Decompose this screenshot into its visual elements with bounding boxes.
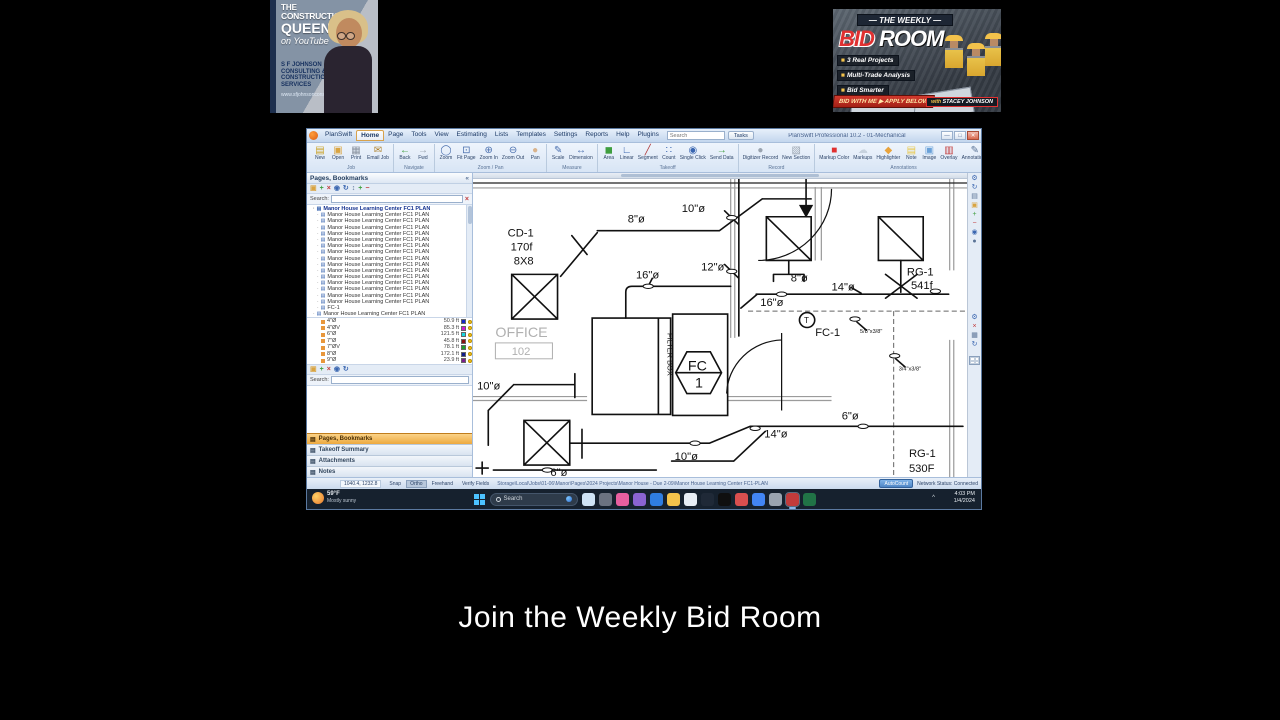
plan-label: 8"ø: [628, 214, 645, 226]
plan-labels: 10"ø8"øCD-1170f8X812"ø16"ø8"ø14"ø16"øRG-…: [477, 203, 936, 477]
cursor-coordinates: 1040.4, 1232.8: [340, 480, 381, 488]
weather-icon: [312, 492, 324, 504]
menu-tabs: PlanSwiftHomePageToolsViewEstimatingList…: [321, 130, 663, 141]
record-icon[interactable]: ◉: [334, 184, 340, 193]
plan-label: 10"ø: [477, 381, 500, 393]
takeoff-items-list: 4"Ø50.9 ft4"ØV85.3 ft6"Ø121.5 ft7"Ø45.8 …: [307, 318, 472, 365]
sort-icon[interactable]: ↕: [352, 184, 356, 193]
linear-takeoff-icon: [321, 359, 325, 363]
record-icon[interactable]: ◉: [334, 365, 340, 374]
taskbar-icons: [582, 493, 816, 506]
glasses-icon: [337, 27, 361, 35]
ribbon-button-open[interactable]: ▣Open: [329, 144, 347, 163]
ribbon-button-label: Area: [604, 156, 615, 162]
ribbon-button-highlighter[interactable]: ◆Highlighter: [874, 144, 902, 163]
takeoff-color-chip[interactable]: [461, 358, 466, 363]
plan-label: 3/4"x3/8": [899, 367, 921, 373]
ribbon-button-segment[interactable]: ╱Segment: [636, 144, 660, 163]
ribbon-button-label: New Section: [782, 156, 810, 162]
tree-scrollbar[interactable]: [466, 205, 472, 317]
plan-label: RG-1: [909, 448, 936, 460]
visibility-bulb-icon[interactable]: [468, 333, 472, 337]
ribbon-group-zoom-pan: ◯Zoom⊡Fit Page⊕Zoom In⊖Zoom Out●PanZoom …: [435, 144, 547, 172]
planswift-window: PlanSwiftHomePageToolsViewEstimatingList…: [306, 128, 982, 510]
page-icon: ▤: [317, 311, 322, 317]
sidebar-toolbar: ▣+×◉↻↕+−: [307, 184, 472, 194]
banner-bullet: ■3 Real Projects: [837, 55, 899, 66]
ribbon-button-label: Email Job: [367, 156, 389, 162]
plan-label: 14"ø: [832, 281, 855, 293]
store-icon[interactable]: [633, 493, 646, 506]
explorer-icon[interactable]: [667, 493, 680, 506]
record-icon[interactable]: ◉: [971, 229, 977, 237]
app-status-bar: 1040.4, 1232.8 SnapOrthoFreehandVerify F…: [307, 477, 981, 489]
ribbon-button-label: Fit Page: [457, 156, 476, 162]
bing-icon: [566, 496, 572, 502]
ribbon-group-measure: ✎Scale↔DimensionMeasure: [547, 144, 598, 172]
ribbon-button-fwd[interactable]: →Fwd: [414, 144, 432, 163]
takeoff-color-chip[interactable]: [461, 345, 466, 350]
settings-icon[interactable]: ⚙: [971, 314, 977, 322]
accordion-attachments[interactable]: ▤Attachments: [307, 455, 472, 466]
menu-tab-estimating[interactable]: Estimating: [453, 130, 491, 141]
hvac-plan-drawing[interactable]: 10"ø8"øCD-1170f8X812"ø16"ø8"ø14"ø16"øRG-…: [473, 179, 967, 477]
plan-label: FC: [688, 358, 707, 374]
plan-label: 16"ø: [636, 269, 659, 281]
sidebar-search-row: Search: ×: [307, 194, 472, 205]
ribbon-group-navigate: ←Back→FwdNavigate: [394, 144, 435, 172]
snip-icon[interactable]: [599, 493, 612, 506]
tray-chevron-icon[interactable]: ^: [932, 495, 935, 501]
delete-icon[interactable]: ×: [327, 365, 331, 374]
accordion-notes[interactable]: ▤Notes: [307, 466, 472, 477]
banner-title-room: ROOM: [874, 26, 944, 51]
title-menu-bar: PlanSwiftHomePageToolsViewEstimatingList…: [307, 129, 981, 143]
ribbon-button-email-job[interactable]: ✉Email Job: [365, 144, 391, 163]
app-logo-icon: [309, 131, 318, 140]
ribbon-button-new[interactable]: ▤New: [311, 144, 329, 163]
search-input[interactable]: [667, 131, 725, 140]
add-icon[interactable]: +: [320, 365, 324, 374]
collapse-panel-icon[interactable]: «: [465, 175, 469, 182]
info-icon[interactable]: ●: [972, 238, 976, 246]
linear-takeoff-icon: [321, 326, 325, 330]
ribbon-button-pan[interactable]: ●Pan: [526, 144, 544, 163]
plan-label: 12"ø: [701, 262, 724, 274]
visibility-bulb-icon[interactable]: [468, 346, 472, 350]
delete-icon[interactable]: ×: [327, 184, 331, 193]
ribbon-button-label: Linear: [620, 156, 634, 162]
menu-tab-templates[interactable]: Templates: [512, 130, 550, 141]
ribbon-button-label: Send Data: [710, 156, 734, 162]
close-icon[interactable]: ×: [972, 323, 976, 331]
ribbon-button-label: Highlighter: [876, 156, 900, 162]
close-button[interactable]: ✕: [967, 131, 979, 140]
visibility-bulb-icon[interactable]: [468, 352, 472, 356]
ribbon-button-label: Zoom: [440, 156, 453, 162]
banner-bullets: ■3 Real Projects■Multi-Trade Analysis■Bi…: [837, 53, 915, 98]
menu-tab-tools[interactable]: Tools: [407, 130, 430, 141]
plan-label: 170f: [511, 242, 534, 254]
visibility-bulb-icon[interactable]: [468, 359, 472, 363]
ribbon-button-markups[interactable]: ☁Markups: [851, 144, 874, 163]
tasks-button[interactable]: Tasks: [728, 131, 754, 140]
navigator-thumbnail[interactable]: [969, 356, 980, 365]
copilot-icon[interactable]: [582, 493, 595, 506]
planswift-icon[interactable]: [786, 493, 799, 506]
plan-label: 10"ø: [675, 451, 698, 463]
menu-tab-home[interactable]: Home: [356, 130, 384, 141]
bid-room-banner: — THE WEEKLY — BID ROOM ■3 Real Projects…: [833, 9, 1001, 112]
app-icon[interactable]: [684, 493, 697, 506]
ductwork-lines: [476, 179, 963, 474]
takeoff-color-chip[interactable]: [461, 319, 466, 324]
plan-label: RG-1: [907, 266, 934, 278]
ribbon-button-label: Zoom Out: [502, 156, 524, 162]
expand-all-icon[interactable]: +: [358, 184, 362, 193]
ribbon-group-job: ▤New▣Open▦Print✉Email JobJob: [309, 144, 394, 172]
ribbon-button-area[interactable]: ◼Area: [600, 144, 618, 163]
ribbon-button-image[interactable]: ▣Image: [920, 144, 938, 163]
plan-label: FC-1: [815, 327, 840, 339]
webcam-person: [320, 10, 376, 113]
accordion-takeoff-summary[interactable]: ▤Takeoff Summary: [307, 444, 472, 455]
add-icon[interactable]: +: [972, 211, 976, 219]
grid-icon[interactable]: ▦: [971, 332, 978, 340]
ribbon-button-overlay[interactable]: ▥Overlay: [938, 144, 959, 163]
remove-icon[interactable]: −: [972, 220, 976, 228]
pages-search-input[interactable]: [331, 195, 463, 203]
panel-icon: ▤: [310, 458, 316, 465]
ribbon-button-label: Zoom In: [480, 156, 498, 162]
tiktok-icon[interactable]: [718, 493, 731, 506]
plan-label: CD-1: [508, 228, 534, 240]
ribbon-button-label: Overlay: [940, 156, 957, 162]
banner-bullet: ■Multi-Trade Analysis: [837, 70, 915, 81]
ribbon-button-label: Back: [399, 156, 410, 162]
refresh-icon[interactable]: ↻: [972, 341, 978, 349]
ribbon-button-label: Open: [332, 156, 344, 162]
secondary-search-row: Search:: [307, 375, 472, 386]
linear-takeoff-icon: [321, 320, 325, 324]
plan-label: 8"ø: [791, 272, 808, 284]
plan-label: 541f: [911, 280, 934, 292]
ribbon-button-label: Image: [922, 156, 936, 162]
takeoff-color-chip[interactable]: [461, 332, 466, 337]
draw-modes: SnapOrthoFreehandVerify Fields: [385, 480, 493, 488]
ribbon-button-new-section[interactable]: ▧New Section: [780, 144, 812, 163]
folder-icon[interactable]: ▣: [310, 184, 317, 193]
ribbon-group-takeoff: ◼Area∟Linear╱Segment∷Count◉Single Click→…: [598, 144, 739, 172]
ribbon-button-zoom-in[interactable]: ⊕Zoom In: [478, 144, 500, 163]
menu-tab-plugins[interactable]: Plugins: [634, 130, 663, 141]
takeoff-color-chip[interactable]: [461, 326, 466, 331]
window-title: PlanSwift Professional 10.2 - 01-Mechani…: [754, 133, 940, 139]
takeoff-item[interactable]: 9"Ø23.9 ft: [307, 357, 472, 364]
ribbon-button-fit-page[interactable]: ⊡Fit Page: [455, 144, 478, 163]
plan-label: FILTER BOX: [666, 333, 675, 376]
chrome-icon[interactable]: [752, 493, 765, 506]
linear-takeoff-icon: [321, 352, 325, 356]
ribbon-button-label: Single Click: [680, 156, 706, 162]
ribbon-button-single-click[interactable]: ◉Single Click: [678, 144, 708, 163]
plan-label: 8X8: [514, 256, 534, 268]
taskbar-clock[interactable]: 4:03 PM 1/4/2024: [954, 491, 975, 505]
menu-tab-settings[interactable]: Settings: [550, 130, 582, 141]
plan-label: 6"ø: [550, 467, 567, 477]
pages-tree: ·▤Manor House Learning Center FC1 PLAN·▤…: [307, 205, 472, 318]
panel-icon: ▤: [310, 469, 316, 476]
network-status: Network Status: Connected: [917, 481, 978, 487]
mode-snap[interactable]: Snap: [385, 480, 405, 488]
ribbon-button-label: Count: [662, 156, 675, 162]
damper-symbols: [542, 216, 940, 473]
notepad-icon[interactable]: [701, 493, 714, 506]
ribbon-button-zoom-out[interactable]: ⊖Zoom Out: [500, 144, 526, 163]
menu-tab-view[interactable]: View: [431, 130, 453, 141]
photos-icon[interactable]: [616, 493, 629, 506]
plan-label: 1: [695, 375, 703, 391]
ribbon-button-label: Scale: [552, 156, 565, 162]
banner-host-badge: with STACEY JOHNSON: [926, 97, 998, 107]
canvas-side-toolbar: ⚙↻▤▣+−◉●⚙×▦↻: [967, 173, 981, 477]
autocount-button[interactable]: AutoCount: [879, 479, 913, 488]
ribbon-group-label: Measure: [549, 165, 595, 172]
plan-label: T: [804, 316, 809, 325]
drawing-canvas[interactable]: 10"ø8"øCD-1170f8X812"ø16"ø8"ø14"ø16"øRG-…: [473, 173, 981, 477]
menu-tab-page[interactable]: Page: [384, 130, 407, 141]
banner-title-bid: BID: [839, 26, 874, 51]
folder-icon[interactable]: ▣: [971, 202, 978, 210]
menu-tab-lists[interactable]: Lists: [491, 130, 512, 141]
menu-tab-reports[interactable]: Reports: [581, 130, 612, 141]
person-torso: [324, 46, 372, 113]
minimize-button[interactable]: —: [941, 131, 953, 140]
edge-icon[interactable]: [650, 493, 663, 506]
maximize-button[interactable]: □: [954, 131, 966, 140]
panel-icon: ▤: [310, 447, 316, 454]
settings-icon[interactable]: ⚙: [971, 175, 977, 183]
ribbon-button-digitizer-record[interactable]: ●Digitizer Record: [741, 144, 781, 163]
start-button[interactable]: [473, 493, 486, 506]
ribbon-button-scale[interactable]: ✎Scale: [549, 144, 567, 163]
media-icon[interactable]: [735, 493, 748, 506]
caption: Join the Weekly Bid Room: [0, 601, 1280, 635]
linear-takeoff-icon: [321, 333, 325, 337]
visibility-bulb-icon[interactable]: [468, 339, 472, 343]
ribbon-button-label: Digitizer Record: [743, 156, 779, 162]
plan-label: 5/8"x3/8": [860, 329, 882, 335]
webcam-brand-card: THE CONSTRUCTION QUEEN on YouTube S F JO…: [270, 0, 378, 113]
takeoff-color-chip[interactable]: [461, 339, 466, 344]
ribbon-button-back[interactable]: ←Back: [396, 144, 414, 163]
visibility-bulb-icon[interactable]: [468, 326, 472, 330]
ribbon-button-label: Segment: [638, 156, 658, 162]
ribbon-group-label: Record: [741, 165, 813, 172]
plan-label: 16"ø: [760, 297, 783, 309]
weather-widget[interactable]: 59°F Mostly sunny: [312, 491, 356, 504]
ribbon-button-zoom[interactable]: ◯Zoom: [437, 144, 455, 163]
linear-takeoff-icon: [321, 339, 325, 343]
menu-tab-planswift[interactable]: PlanSwift: [321, 130, 356, 141]
mode-verify-fields[interactable]: Verify Fields: [458, 480, 493, 488]
banner-cta: BID WITH ME ▶ APPLY BELOW: [833, 95, 935, 108]
menu-tab-help[interactable]: Help: [612, 130, 633, 141]
collapse-all-icon[interactable]: −: [365, 184, 369, 193]
document-path: Storage\Local\Jobs\01-06\Manor\Pages\202…: [497, 481, 875, 487]
windows-taskbar: 59°F Mostly sunny Search ^ 4:03 PM 1/4/2…: [307, 489, 981, 509]
ribbon-group-annotations: ■Markup Color☁Markups◆Highlighter▤Note▣I…: [815, 144, 981, 172]
ribbon-group-label: Annotations: [817, 165, 981, 172]
construction-worker-art: [945, 35, 963, 68]
ribbon-button-linear[interactable]: ∟Linear: [618, 144, 636, 163]
plan-label: OFFICE: [495, 324, 547, 340]
plan-label: 102: [512, 346, 531, 358]
plan-label: 530F: [909, 463, 935, 475]
construction-worker-art: [985, 33, 1001, 66]
mode-ortho[interactable]: Ortho: [406, 480, 427, 488]
page-tree-item[interactable]: ·▤Manor House Learning Center FC1 PLAN: [309, 311, 472, 317]
mode-freehand[interactable]: Freehand: [428, 480, 457, 488]
visibility-bulb-icon[interactable]: [468, 320, 472, 324]
ribbon-toolbar: ▤New▣Open▦Print✉Email JobJob←Back→FwdNav…: [307, 143, 981, 173]
construction-worker-art: [967, 43, 985, 76]
ribbon-button-label: Fwd: [418, 156, 427, 162]
plan-label: 10"ø: [682, 203, 705, 215]
ribbon-group-label: Job: [311, 165, 391, 172]
panel-icon: ▤: [310, 436, 316, 443]
ribbon-button-count[interactable]: ∷Count: [660, 144, 678, 163]
ribbon-button-label: Dimension: [569, 156, 593, 162]
ribbon-button-label: Markup Color: [819, 156, 849, 162]
linear-takeoff-icon: [321, 346, 325, 350]
refresh-icon[interactable]: ↻: [972, 184, 978, 192]
ribbon-button-label: Markups: [853, 156, 872, 162]
banner-title: BID ROOM: [839, 26, 943, 52]
search-icon: [496, 497, 501, 502]
new-page-icon[interactable]: ▤: [971, 193, 978, 201]
add-icon[interactable]: +: [320, 184, 324, 193]
takeoff-color-chip[interactable]: [461, 352, 466, 357]
ribbon-button-send-data[interactable]: →Send Data: [708, 144, 736, 163]
folder-icon[interactable]: ▣: [310, 365, 317, 374]
ribbon-button-label: Pan: [531, 156, 540, 162]
ribbon-button-markup-color[interactable]: ■Markup Color: [817, 144, 851, 163]
ribbon-group-label: Navigate: [396, 165, 432, 172]
steam-icon[interactable]: [769, 493, 782, 506]
ribbon-group-record: ●Digitizer Record▧New SectionRecord: [739, 144, 816, 172]
ribbon-button-label: Print: [351, 156, 361, 162]
takeoff-quantity: 23.9 ft: [444, 357, 459, 364]
sidebar-accordion: ▤Pages, Bookmarks▤Takeoff Summary▤Attach…: [307, 433, 472, 477]
secondary-toolbar: ▣+×◉↻: [307, 365, 472, 375]
ribbon-button-label: New: [315, 156, 325, 162]
accordion-pages-bookmarks[interactable]: ▤Pages, Bookmarks: [307, 433, 472, 444]
refresh-icon[interactable]: ↻: [343, 184, 349, 193]
pages-sidebar: Pages, Bookmarks « ▣+×◉↻↕+− Search: × ·▤…: [307, 173, 473, 477]
sidebar-header: Pages, Bookmarks «: [307, 173, 472, 184]
ribbon-group-label: Zoom / Pan: [437, 165, 544, 172]
refresh-icon[interactable]: ↻: [343, 365, 349, 374]
clear-search-icon[interactable]: ×: [465, 196, 469, 203]
ribbon-button-print[interactable]: ▦Print: [347, 144, 365, 163]
plan-label: 14"ø: [764, 428, 787, 440]
ribbon-button-dimension[interactable]: ↔Dimension: [567, 144, 595, 163]
taskbar-search[interactable]: Search: [490, 493, 578, 506]
ribbon-button-annotations[interactable]: ✎Annotations: [960, 144, 981, 163]
ribbon-button-label: Annotations: [962, 156, 981, 162]
banner-kicker: — THE WEEKLY —: [857, 14, 953, 26]
flow-arrow: [799, 205, 813, 218]
excel-icon[interactable]: [803, 493, 816, 506]
plan-label: 6"ø: [842, 411, 859, 423]
ribbon-group-label: Takeoff: [600, 165, 736, 172]
ribbon-button-note[interactable]: ▤Note: [902, 144, 920, 163]
ribbon-button-label: Note: [906, 156, 917, 162]
secondary-search-input[interactable]: [331, 376, 469, 384]
video-frame: THE CONSTRUCTION QUEEN on YouTube S F JO…: [0, 0, 1280, 720]
